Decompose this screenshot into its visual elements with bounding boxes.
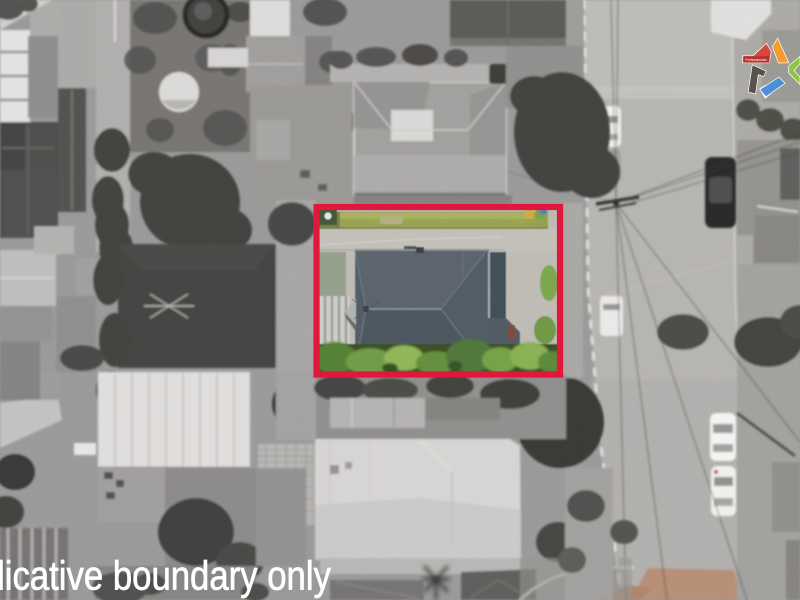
svg-text:Professionals: Professionals (745, 58, 767, 62)
svg-text:Indicative boundary only: Indicative boundary only (0, 554, 331, 599)
